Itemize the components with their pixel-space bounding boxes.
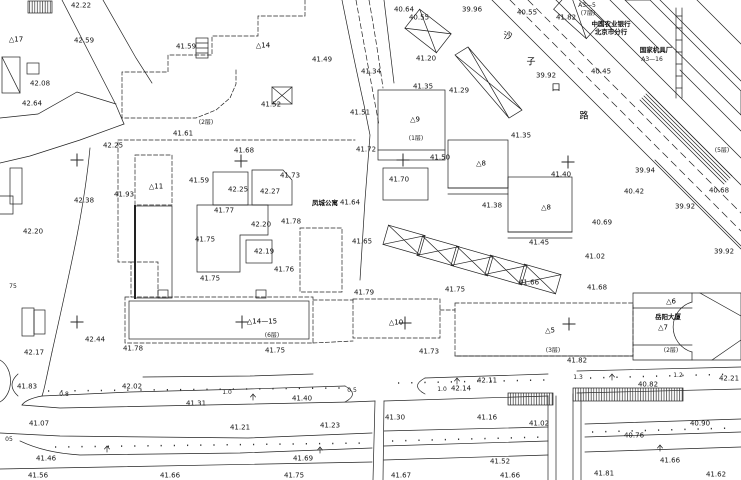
elevation-label: 41.38 bbox=[482, 203, 502, 210]
elevation-label: 42.21 bbox=[719, 376, 739, 383]
elevation-label: 41.45 bbox=[529, 240, 549, 247]
elevation-label: A3—5 bbox=[578, 3, 596, 9]
elevation-label: 40.64 bbox=[394, 7, 414, 14]
elevation-label: 40.45 bbox=[591, 69, 611, 76]
elevation-label: (2层) bbox=[199, 120, 214, 126]
street-name-char: 路 bbox=[579, 113, 588, 122]
survey-grid-cross bbox=[236, 316, 249, 329]
elevation-label: 41.75 bbox=[284, 473, 304, 480]
elevation-label: 41.75 bbox=[200, 276, 220, 283]
elevation-label: 41.75 bbox=[195, 237, 215, 244]
elevation-label: 41.07 bbox=[29, 421, 49, 428]
elevation-label: 41.82 bbox=[556, 15, 576, 22]
elevation-label: (3层) bbox=[546, 348, 561, 354]
elevation-label: 41.49 bbox=[312, 57, 332, 64]
elevation-label: 40.82 bbox=[638, 382, 658, 389]
elevation-label: 41.50 bbox=[430, 155, 450, 162]
elevation-label: 41.78 bbox=[123, 346, 143, 353]
labels-layer: 42.2242.59△1741.5942.0842.6441.61(2层)42.… bbox=[0, 0, 741, 480]
place-name-label: 凤城公寓 bbox=[312, 200, 338, 207]
street-name-char: 沙 bbox=[503, 33, 512, 42]
elevation-label: (6层) bbox=[265, 333, 280, 339]
survey-grid-cross bbox=[399, 317, 412, 330]
elevation-label: 40.90 bbox=[690, 421, 710, 428]
elevation-label: 40.55 bbox=[517, 10, 537, 17]
elevation-label: 42.20 bbox=[251, 222, 271, 229]
map-canvas: 42.2242.59△1741.5942.0842.6441.61(2层)42.… bbox=[0, 0, 741, 480]
elevation-label: A3—16 bbox=[641, 57, 663, 63]
elevation-label: 75 bbox=[9, 284, 17, 290]
elevation-label: (1层) bbox=[409, 136, 424, 142]
building-id-label: △9 bbox=[410, 117, 420, 124]
building-id-label: △14—15 bbox=[247, 319, 277, 326]
elevation-label: 41.67 bbox=[391, 473, 411, 480]
building-id-label: △6 bbox=[666, 299, 676, 306]
elevation-label: 0.5 bbox=[347, 388, 357, 394]
elevation-label: 42.64 bbox=[22, 101, 42, 108]
elevation-label: 41.35 bbox=[511, 133, 531, 140]
elevation-label: 41.83 bbox=[17, 384, 37, 391]
elevation-label: 42.25 bbox=[228, 187, 248, 194]
elevation-label: 42.17 bbox=[24, 350, 44, 357]
elevation-label: 41.81 bbox=[594, 471, 614, 478]
elevation-label: 41.79 bbox=[354, 290, 374, 297]
elevation-label: 41.62 bbox=[706, 472, 726, 479]
elevation-label: 41.51 bbox=[350, 110, 370, 117]
elevation-label: 41.16 bbox=[477, 415, 497, 422]
building-id-label: △11 bbox=[149, 184, 163, 191]
elevation-label: 40.55 bbox=[409, 15, 429, 22]
survey-grid-cross bbox=[71, 154, 84, 167]
elevation-label: 05 bbox=[5, 437, 13, 443]
elevation-label: 39.92 bbox=[675, 204, 695, 211]
elevation-label: 41.66 bbox=[160, 473, 180, 480]
elevation-label: 41.66 bbox=[660, 458, 680, 465]
elevation-label: 41.21 bbox=[230, 425, 250, 432]
survey-grid-cross bbox=[397, 154, 410, 167]
elevation-label: 42.38 bbox=[74, 198, 94, 205]
elevation-label: 42.22 bbox=[71, 3, 91, 10]
elevation-label: 42.44 bbox=[85, 337, 105, 344]
elevation-label: 41.52 bbox=[490, 459, 510, 466]
place-name-label: 北京市分行 bbox=[595, 29, 628, 36]
elevation-label: 41.75 bbox=[445, 287, 465, 294]
elevation-label: 42.11 bbox=[477, 378, 497, 385]
elevation-label: 41.31 bbox=[186, 401, 206, 408]
elevation-label: 41.40 bbox=[292, 396, 312, 403]
elevation-label: 41.77 bbox=[214, 208, 234, 215]
elevation-label: 40.76 bbox=[624, 433, 644, 440]
elevation-label: (2层) bbox=[664, 348, 679, 354]
elevation-label: 41.73 bbox=[280, 173, 300, 180]
building-id-label: △8 bbox=[476, 161, 486, 168]
elevation-label: 41.56 bbox=[28, 473, 48, 480]
elevation-label: 41.78 bbox=[281, 219, 301, 226]
elevation-label: 41.68 bbox=[587, 285, 607, 292]
elevation-label: 40.68 bbox=[709, 188, 729, 195]
elevation-label: 41.59 bbox=[189, 178, 209, 185]
elevation-label: 41.72 bbox=[356, 147, 376, 154]
elevation-label: 41.70 bbox=[389, 177, 409, 184]
elevation-label: 1.2 bbox=[673, 373, 683, 379]
elevation-label: 41.66 bbox=[500, 473, 520, 480]
elevation-label: 41.46 bbox=[36, 456, 56, 463]
building-id-label: △7 bbox=[658, 325, 668, 332]
elevation-label: 42.20 bbox=[23, 229, 43, 236]
elevation-label: 41.02 bbox=[585, 254, 605, 261]
elevation-label: 40.42 bbox=[624, 189, 644, 196]
elevation-label: 41.66 bbox=[519, 280, 539, 287]
elevation-label: 41.52 bbox=[261, 102, 281, 109]
elevation-label: 41.34 bbox=[361, 69, 381, 76]
building-id-label: △5 bbox=[545, 328, 555, 335]
elevation-label: 41.73 bbox=[419, 349, 439, 356]
elevation-label: 41.64 bbox=[340, 200, 360, 207]
elevation-label: 41.68 bbox=[234, 148, 254, 155]
elevation-label: 41.69 bbox=[293, 456, 313, 463]
building-id-label: △14 bbox=[256, 43, 270, 50]
elevation-label: 42.14 bbox=[451, 386, 471, 393]
elevation-label: 42.02 bbox=[122, 384, 142, 391]
elevation-label: 41.65 bbox=[352, 239, 372, 246]
elevation-label: 42.08 bbox=[30, 81, 50, 88]
elevation-label: 42.19 bbox=[254, 249, 274, 256]
elevation-label: 39.96 bbox=[462, 7, 482, 14]
elevation-label: 41.35 bbox=[413, 84, 433, 91]
elevation-label: 1.3 bbox=[573, 375, 583, 381]
elevation-label: 40.69 bbox=[592, 220, 612, 227]
elevation-label: 41.40 bbox=[551, 172, 571, 179]
street-name-char: 口 bbox=[551, 85, 560, 94]
survey-grid-cross bbox=[562, 156, 575, 169]
survey-grid-cross bbox=[563, 318, 576, 331]
elevation-label: 39.92 bbox=[536, 73, 556, 80]
elevation-label: 1.0 bbox=[437, 387, 447, 393]
elevation-label: 41.23 bbox=[320, 423, 340, 430]
elevation-label: (7层) bbox=[581, 11, 596, 17]
elevation-label: 1.0 bbox=[222, 390, 232, 396]
survey-grid-cross bbox=[235, 155, 248, 168]
elevation-label: 41.30 bbox=[385, 415, 405, 422]
elevation-label: 41.59 bbox=[176, 44, 196, 51]
elevation-label: 39.94 bbox=[635, 168, 655, 175]
elevation-label: 0.8 bbox=[59, 392, 69, 398]
place-name-label: 中国农业银行 bbox=[592, 21, 631, 28]
elevation-label: 41.20 bbox=[416, 56, 436, 63]
place-name-label: 岳阳大厦 bbox=[655, 314, 681, 321]
elevation-label: 39.92 bbox=[714, 249, 734, 256]
elevation-label: 42.59 bbox=[74, 38, 94, 45]
elevation-label: 42.25 bbox=[103, 143, 123, 150]
elevation-label: 41.93 bbox=[114, 192, 134, 199]
elevation-label: 42.27 bbox=[260, 189, 280, 196]
building-id-label: △17 bbox=[9, 37, 23, 44]
elevation-label: 41.75 bbox=[265, 348, 285, 355]
elevation-label: 41.82 bbox=[567, 358, 587, 365]
place-name-label: 国家机具厂 bbox=[640, 47, 673, 54]
elevation-label: 41.61 bbox=[173, 131, 193, 138]
building-id-label: △8 bbox=[541, 205, 551, 212]
elevation-label: (5层) bbox=[715, 148, 730, 154]
elevation-label: 41.02 bbox=[529, 421, 549, 428]
survey-grid-cross bbox=[71, 316, 84, 329]
street-name-char: 子 bbox=[526, 59, 535, 68]
elevation-label: 41.29 bbox=[449, 88, 469, 95]
elevation-label: 41.76 bbox=[274, 267, 294, 274]
